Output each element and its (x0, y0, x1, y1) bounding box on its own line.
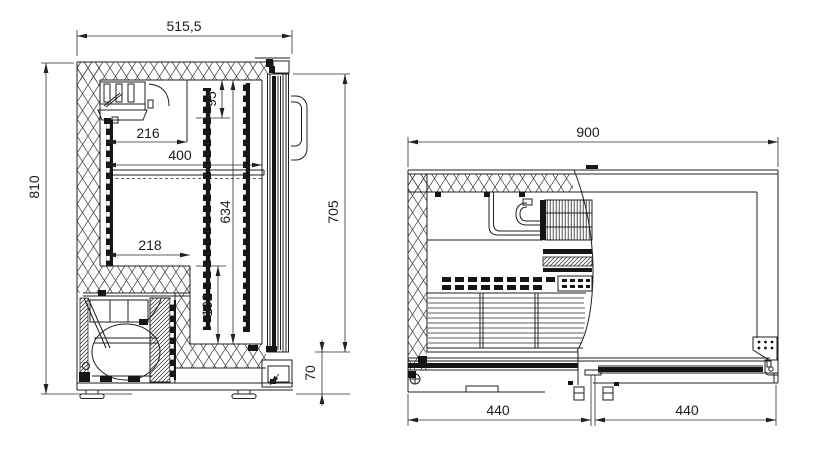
dim-overall-depth: 515,5 (77, 18, 292, 56)
dim-interior-height: 634 (217, 80, 233, 344)
top-view: 900 440 440 (408, 124, 778, 426)
dim-overall-depth-label: 515,5 (166, 18, 201, 34)
condenser (150, 298, 176, 382)
fan-shroud (543, 249, 592, 272)
dim-left-section: 440 (408, 375, 591, 426)
dim-evap-zone-height-label: 95 (203, 91, 219, 107)
dim-overall-width: 900 (408, 124, 778, 167)
dim-step-depth: 218 (106, 237, 190, 255)
dim-overall-width-label: 900 (576, 124, 600, 140)
feet-top-view (568, 381, 619, 400)
dim-left-section-label: 440 (486, 402, 510, 418)
dim-shelf-depth-label: 400 (168, 147, 192, 163)
dim-right-section-label: 440 (675, 402, 699, 418)
dim-interior-height-label: 634 (217, 200, 233, 224)
drawing-canvas: 515,5 810 705 70 95 216 (0, 0, 828, 469)
dim-door-height-label: 705 (325, 200, 341, 224)
louvered-grille (427, 293, 586, 348)
condenser-coil (540, 200, 592, 240)
dim-step-depth-label: 218 (138, 237, 162, 253)
compressor-unit (79, 298, 161, 382)
dim-base-height: 70 (296, 340, 350, 406)
evaporator-unit (98, 82, 169, 124)
dim-base-height-label: 70 (302, 365, 318, 381)
door-front-right (585, 366, 778, 383)
air-duct-curve (149, 84, 169, 106)
door-top-hinge (273, 61, 289, 73)
refrigerant-piping (489, 192, 540, 235)
dim-evap-depth-label: 216 (136, 125, 160, 141)
dim-evap-zone-height: 95 (196, 80, 230, 118)
dim-evap-depth: 216 (106, 125, 187, 142)
dim-overall-height-label: 810 (26, 175, 42, 199)
shelf (110, 170, 264, 179)
dim-shelf-depth: 400 (106, 147, 262, 165)
door-assembly (248, 59, 289, 352)
dim-step-height-label: 192 (199, 293, 215, 317)
electrical-box (90, 300, 148, 322)
door-handle (291, 96, 307, 160)
technical-drawing: 515,5 810 705 70 95 216 (0, 0, 828, 469)
side-section-view: 515,5 810 705 70 95 216 (26, 18, 350, 406)
vent-slots (442, 276, 592, 291)
door-gasket (272, 76, 276, 350)
